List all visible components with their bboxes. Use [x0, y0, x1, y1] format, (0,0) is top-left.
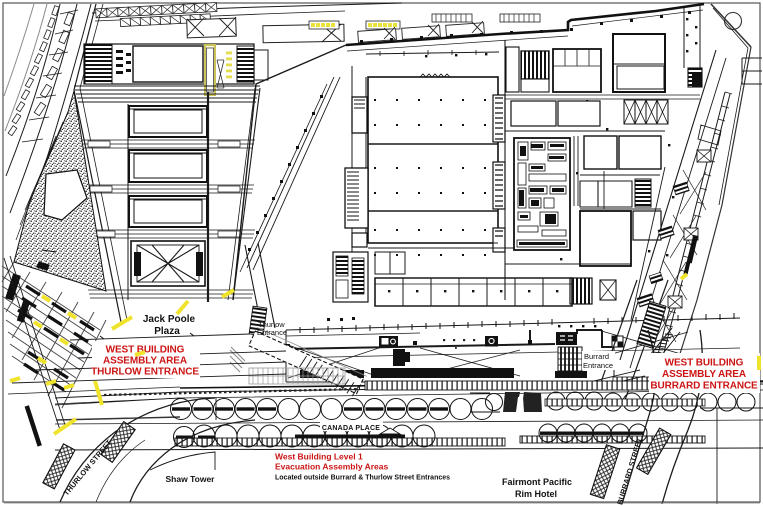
svg-text:Rim Hotel: Rim Hotel — [515, 489, 557, 499]
svg-text:ASSEMBLY AREA: ASSEMBLY AREA — [662, 369, 746, 380]
svg-text:Entrance: Entrance — [583, 361, 613, 370]
svg-text:WEST BUILDING: WEST BUILDING — [665, 358, 744, 369]
svg-text:Plaza: Plaza — [154, 326, 180, 337]
svg-text:CANADA PLACE: CANADA PLACE — [322, 425, 380, 432]
svg-text:Shaw Tower: Shaw Tower — [166, 474, 216, 484]
svg-text:West Building Level 1: West Building Level 1 — [275, 452, 363, 462]
svg-text:Evacuation Assembly Areas: Evacuation Assembly Areas — [275, 462, 388, 472]
svg-text:BURRARD ENTRANCE: BURRARD ENTRANCE — [650, 381, 758, 392]
svg-text:Fairmont Pacific: Fairmont Pacific — [502, 477, 572, 487]
svg-text:THURLOW ENTRANCE: THURLOW ENTRANCE — [91, 367, 199, 378]
svg-text:Jack Poole: Jack Poole — [143, 314, 196, 325]
svg-text:Located outside Burrard & Thur: Located outside Burrard & Thurlow Street… — [275, 475, 450, 482]
svg-text:ASSEMBLY AREA: ASSEMBLY AREA — [103, 356, 187, 367]
svg-text:Entrance: Entrance — [257, 328, 287, 337]
svg-text:Burrard: Burrard — [584, 352, 609, 361]
